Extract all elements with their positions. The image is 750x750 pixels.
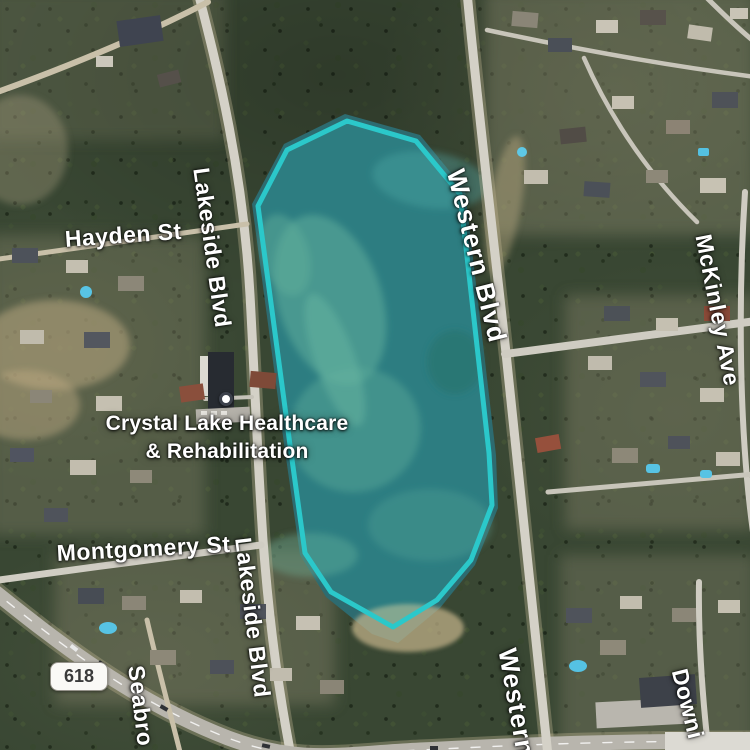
route-618-shield: 618 [50, 662, 108, 691]
poi-label-line2: & Rehabilitation [87, 438, 367, 466]
poi-label[interactable]: Crystal Lake Healthcare & Rehabilitation [87, 410, 367, 466]
satellite-map-canvas[interactable]: Hayden St Lakeside Blvd Lakeside Blvd We… [0, 0, 750, 750]
poi-label-line1: Crystal Lake Healthcare [87, 410, 367, 438]
poi-marker-dot[interactable] [219, 392, 233, 406]
map-artwork [0, 0, 750, 750]
